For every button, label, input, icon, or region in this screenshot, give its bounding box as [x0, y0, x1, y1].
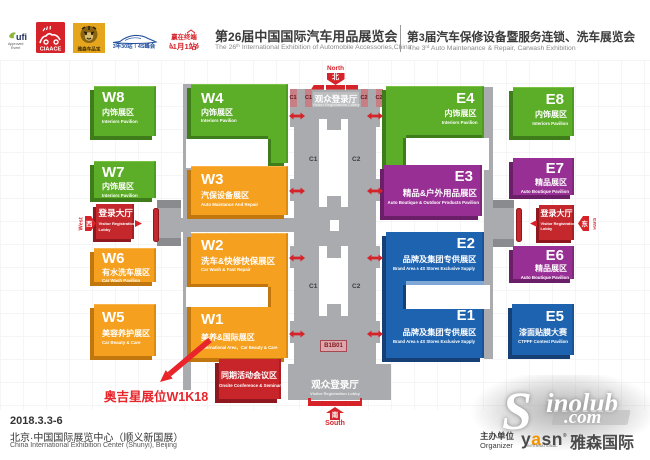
svg-text:East: East	[592, 218, 597, 230]
svg-text:东: 东	[582, 219, 589, 228]
svg-text:Event: Event	[11, 46, 20, 50]
svg-text:1月1站: 1月1站	[173, 41, 197, 51]
svg-text:ufi: ufi	[16, 32, 27, 42]
svg-text:雅森车品宝: 雅森车品宝	[78, 46, 101, 53]
svg-text:West: West	[79, 217, 85, 230]
svg-text:赢在终端: 赢在终端	[171, 32, 197, 41]
svg-text:西: 西	[86, 220, 93, 228]
svg-text:CIAACE: CIAACE	[40, 47, 62, 53]
svg-text:3年30站∣4S峰会: 3年30站∣4S峰会	[113, 42, 156, 49]
